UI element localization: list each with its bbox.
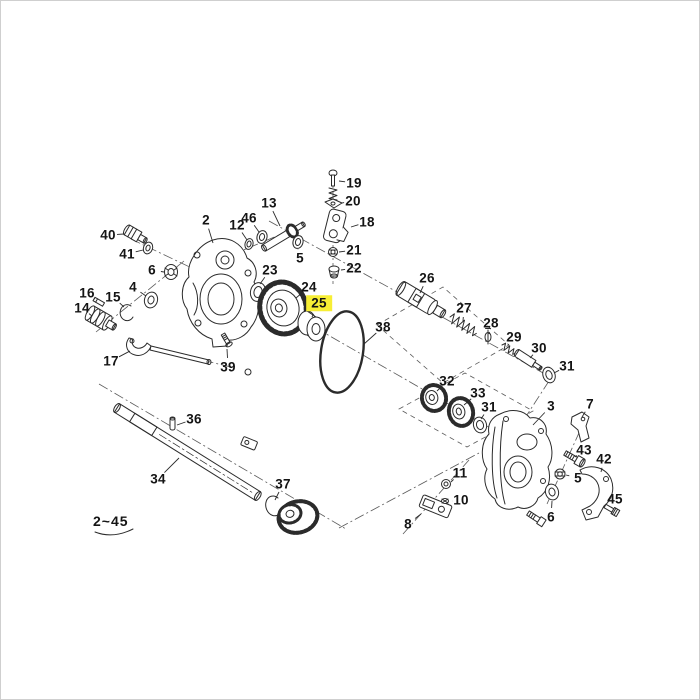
part-label-32: 32 <box>437 373 457 389</box>
part-label-37: 37 <box>273 476 293 492</box>
part-label-6: 6 <box>146 262 158 278</box>
part-fork-17 <box>127 338 211 365</box>
part-label-21: 21 <box>344 242 364 258</box>
part-label-40: 40 <box>98 227 118 243</box>
part-label-41: 41 <box>117 246 137 262</box>
part-label-28: 28 <box>481 315 501 331</box>
part-label-3: 3 <box>545 398 557 414</box>
part-washer-31a <box>541 365 558 384</box>
part-label-39: 39 <box>218 359 238 375</box>
part-gear-bottom <box>274 495 323 538</box>
part-bolt-5b <box>555 469 565 479</box>
part-screw-bottom <box>526 510 546 527</box>
part-label-26: 26 <box>417 270 437 286</box>
part-label-25-highlighted[interactable]: 25 <box>306 295 332 311</box>
leader-line-6 <box>161 272 164 273</box>
part-label-30: 30 <box>529 340 549 356</box>
part-label-24: 24 <box>299 279 319 295</box>
part-label-15: 15 <box>103 289 123 305</box>
part-washer-6a <box>165 265 178 280</box>
part-bracket-8 <box>419 495 453 519</box>
range-label: 2~45 <box>93 513 129 529</box>
part-label-38: 38 <box>373 319 393 335</box>
part-bracket-18 <box>323 208 353 245</box>
leader-line-8 <box>415 514 421 519</box>
part-label-31: 31 <box>557 358 577 374</box>
part-label-2: 2 <box>200 212 212 228</box>
part-label-19: 19 <box>344 175 364 191</box>
part-label-6: 6 <box>545 509 557 525</box>
part-pin-36 <box>170 417 175 430</box>
part-washer-4 <box>143 291 160 310</box>
leader-line-5 <box>566 475 569 476</box>
part-bolt-10 <box>442 499 449 504</box>
leader-line-46 <box>254 225 259 232</box>
part-label-11: 11 <box>451 465 470 481</box>
part-label-29: 29 <box>504 329 524 345</box>
part-label-4: 4 <box>127 279 139 295</box>
part-label-5: 5 <box>572 470 584 486</box>
part-pulley-25 <box>298 311 325 341</box>
part-bracket-7 <box>571 412 589 442</box>
part-ring-12 <box>244 238 255 251</box>
part-label-14: 14 <box>72 300 92 316</box>
part-label-10: 10 <box>451 492 471 508</box>
part-label-22: 22 <box>344 260 364 276</box>
part-washer-39b <box>245 369 251 375</box>
part-housing-2 <box>182 239 259 347</box>
part-label-12: 12 <box>227 217 247 233</box>
part-label-5: 5 <box>294 250 306 266</box>
part-nut-21 <box>329 248 338 257</box>
parts-diagram: 2~45 19201318246124041215226232624416152… <box>0 0 700 700</box>
part-label-34: 34 <box>148 471 168 487</box>
part-label-43: 43 <box>574 442 594 458</box>
leader-line-12 <box>242 233 247 241</box>
leader-line-23 <box>260 277 265 284</box>
part-label-20: 20 <box>343 193 363 209</box>
part-label-42: 42 <box>594 451 614 467</box>
part-label-18: 18 <box>357 214 377 230</box>
part-bracket-small <box>241 436 258 450</box>
part-label-31: 31 <box>479 399 499 415</box>
part-label-45: 45 <box>605 491 625 507</box>
part-plate-20 <box>325 199 342 208</box>
part-spring-27 <box>447 313 479 338</box>
part-label-8: 8 <box>402 516 414 532</box>
exploded-view-drawing <box>1 1 700 700</box>
range-underline <box>95 529 133 535</box>
part-label-17: 17 <box>101 353 121 369</box>
part-nut-22 <box>329 266 339 278</box>
leader-line-39 <box>227 349 228 358</box>
part-label-13: 13 <box>259 195 279 211</box>
part-shaft-26 <box>394 280 449 322</box>
part-housing-3 <box>482 411 552 510</box>
part-label-23: 23 <box>260 262 280 278</box>
part-label-36: 36 <box>184 411 204 427</box>
part-label-27: 27 <box>454 300 474 316</box>
part-bolt-40 <box>122 224 149 246</box>
part-label-16: 16 <box>77 285 97 301</box>
part-label-7: 7 <box>584 396 596 412</box>
part-nut-11 <box>442 480 451 489</box>
